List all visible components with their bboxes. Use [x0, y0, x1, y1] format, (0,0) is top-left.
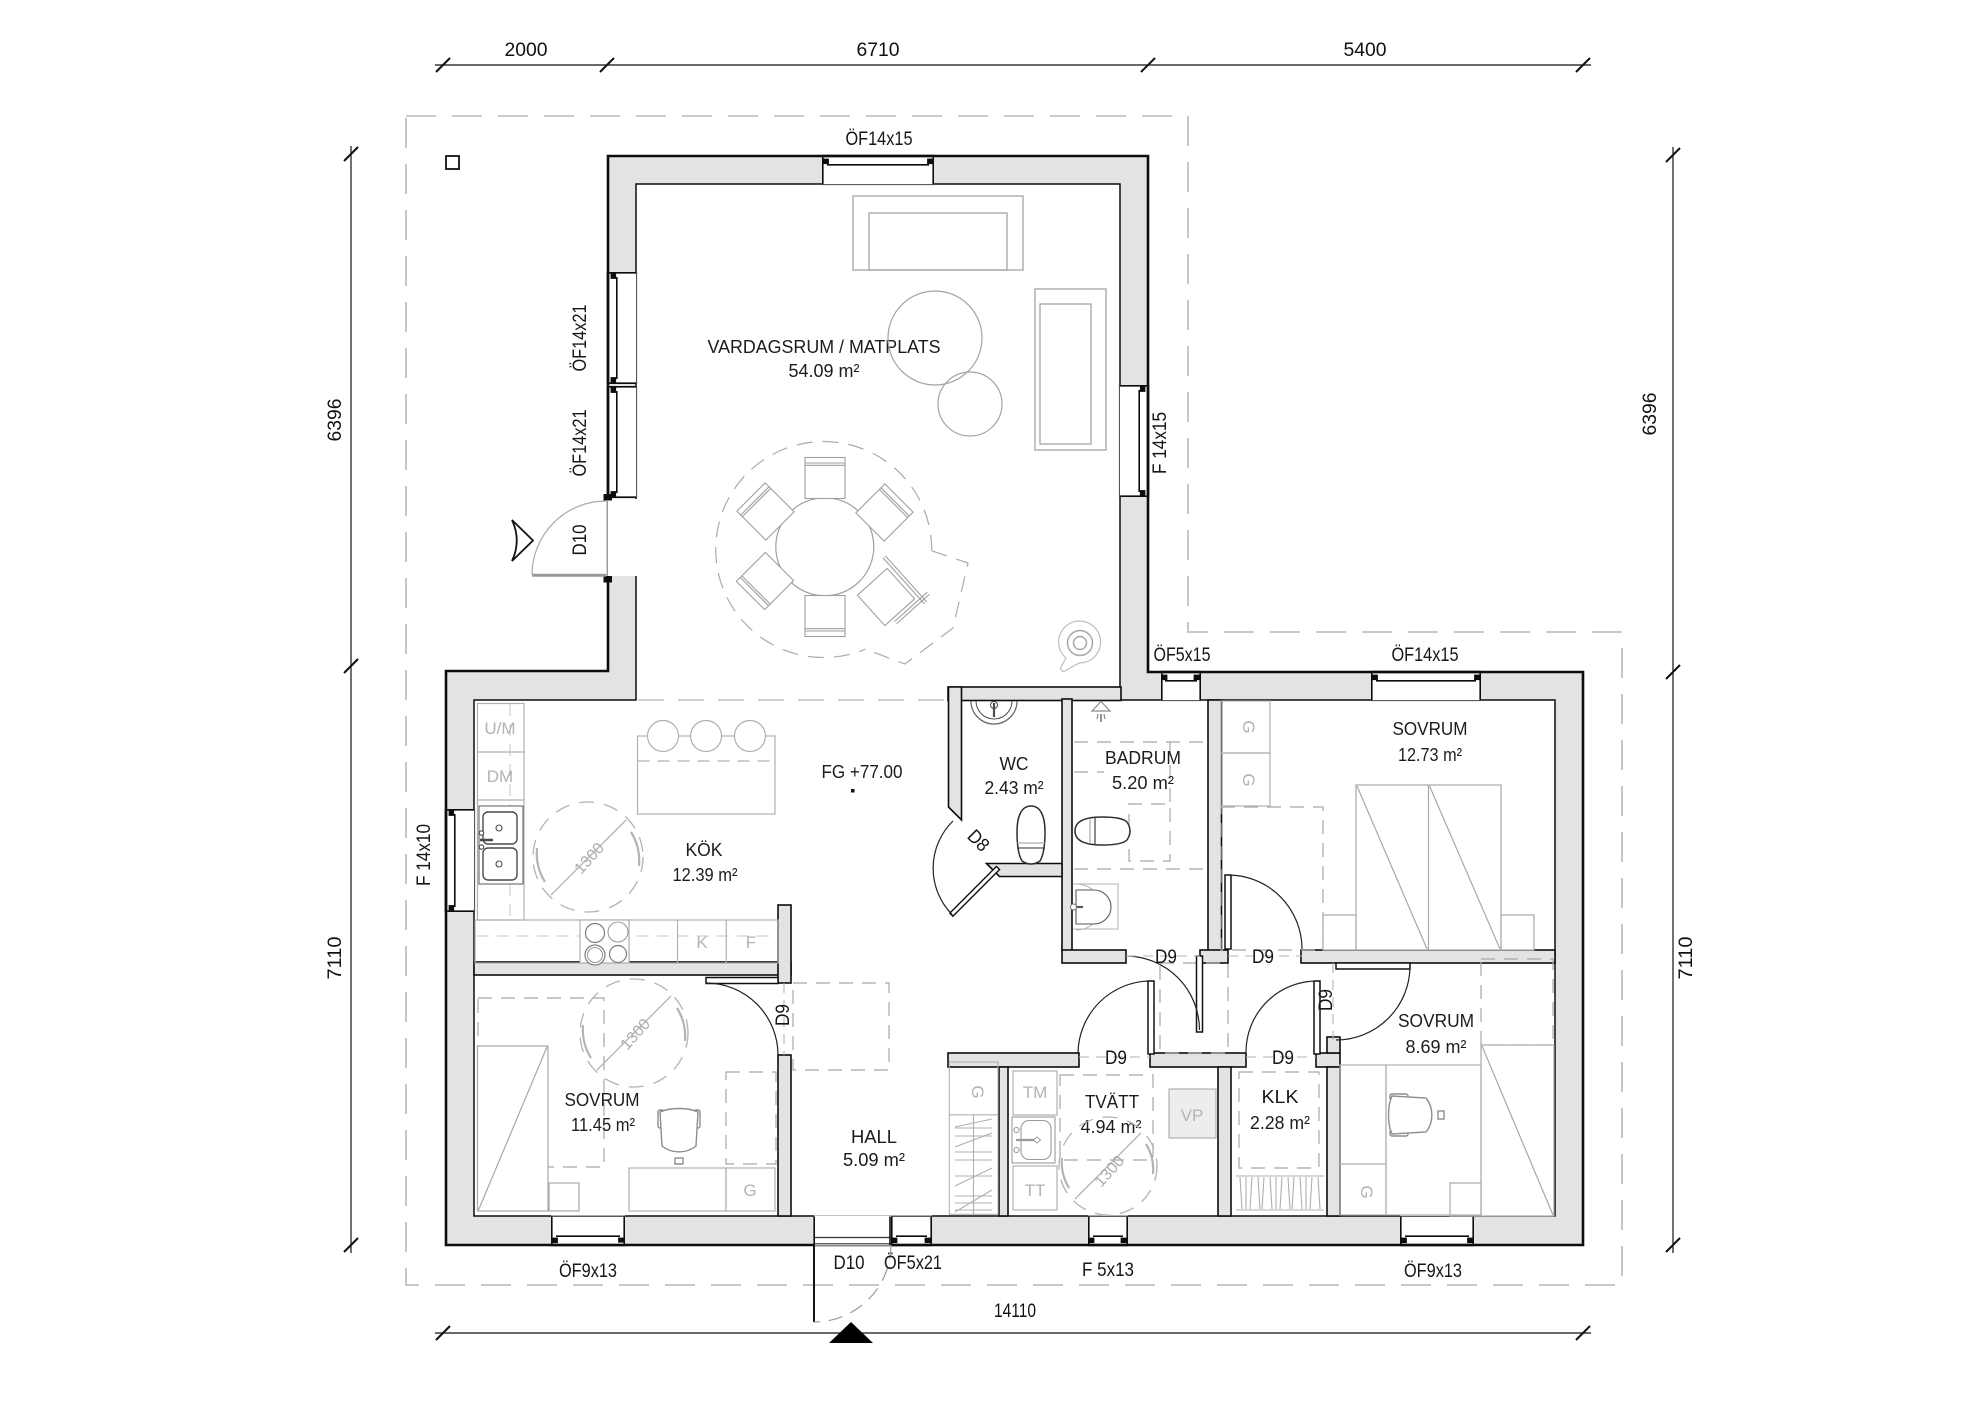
svg-text:G: G	[743, 1181, 756, 1200]
svg-text:2.43 m²: 2.43 m²	[985, 777, 1044, 798]
svg-text:D10: D10	[570, 525, 591, 556]
svg-text:TM: TM	[1023, 1083, 1048, 1102]
svg-text:G: G	[1239, 773, 1258, 786]
svg-text:12.73 m²: 12.73 m²	[1398, 744, 1462, 765]
svg-text:5.20 m²: 5.20 m²	[1112, 772, 1174, 793]
svg-text:VARDAGSRUM / MATPLATS: VARDAGSRUM / MATPLATS	[708, 336, 941, 357]
svg-text:G: G	[968, 1085, 987, 1098]
svg-text:5.09 m²: 5.09 m²	[843, 1149, 905, 1170]
svg-text:SOVRUM: SOVRUM	[1393, 718, 1468, 739]
svg-text:7110: 7110	[324, 936, 346, 979]
svg-text:ÖF5x15: ÖF5x15	[1154, 645, 1211, 666]
svg-text:4.94 m²: 4.94 m²	[1081, 1116, 1142, 1137]
svg-text:D9: D9	[1155, 947, 1177, 968]
svg-text:SOVRUM: SOVRUM	[1398, 1010, 1474, 1031]
svg-text:U/M: U/M	[484, 719, 515, 738]
svg-text:F 14x15: F 14x15	[1150, 412, 1171, 474]
svg-text:D9: D9	[1316, 989, 1337, 1011]
svg-text:8.69 m²: 8.69 m²	[1406, 1036, 1467, 1057]
svg-text:TVÄTT: TVÄTT	[1085, 1091, 1139, 1112]
svg-text:KÖK: KÖK	[686, 839, 724, 860]
svg-text:D9: D9	[1252, 947, 1274, 968]
svg-text:ÖF14x15: ÖF14x15	[846, 129, 913, 150]
svg-text:11.45 m²: 11.45 m²	[571, 1114, 635, 1135]
svg-text:K: K	[696, 933, 708, 952]
svg-text:2.28 m²: 2.28 m²	[1250, 1112, 1310, 1133]
svg-text:5400: 5400	[1344, 39, 1387, 61]
svg-text:D9: D9	[1272, 1048, 1294, 1069]
svg-text:D10: D10	[834, 1253, 865, 1274]
svg-text:2000: 2000	[505, 39, 548, 61]
svg-text:G: G	[1239, 720, 1258, 733]
svg-text:VP: VP	[1181, 1106, 1204, 1125]
svg-text:TT: TT	[1025, 1181, 1046, 1200]
svg-text:6710: 6710	[857, 39, 900, 61]
svg-text:KLK: KLK	[1262, 1086, 1300, 1107]
svg-text:SOVRUM: SOVRUM	[565, 1089, 640, 1110]
svg-text:ÖF14x15: ÖF14x15	[1392, 645, 1459, 666]
svg-text:54.09 m²: 54.09 m²	[789, 360, 860, 381]
svg-text:ÖF14x21: ÖF14x21	[570, 410, 591, 477]
svg-text:HALL: HALL	[851, 1126, 897, 1147]
svg-text:G: G	[1357, 1185, 1376, 1198]
svg-text:6396: 6396	[1639, 393, 1661, 436]
svg-text:WC: WC	[1000, 753, 1029, 774]
svg-text:ÖF14x21: ÖF14x21	[570, 305, 591, 372]
svg-text:6396: 6396	[324, 399, 346, 442]
svg-text:FG +77.00: FG +77.00	[822, 761, 903, 782]
svg-text:BADRUM: BADRUM	[1105, 747, 1181, 768]
svg-text:F 14x10: F 14x10	[414, 824, 435, 886]
svg-text:F 5x13: F 5x13	[1082, 1260, 1134, 1281]
svg-text:7110: 7110	[1675, 936, 1697, 979]
svg-text:ÖF5x21: ÖF5x21	[884, 1253, 942, 1274]
svg-text:14110: 14110	[994, 1300, 1036, 1322]
svg-text:ÖF9x13: ÖF9x13	[1404, 1261, 1462, 1282]
svg-text:DM: DM	[487, 767, 513, 786]
svg-text:F: F	[746, 933, 756, 952]
svg-text:12.39 m²: 12.39 m²	[673, 864, 738, 885]
svg-text:D9: D9	[773, 1004, 794, 1026]
svg-text:D9: D9	[1105, 1048, 1127, 1069]
svg-text:ÖF9x13: ÖF9x13	[559, 1261, 617, 1282]
